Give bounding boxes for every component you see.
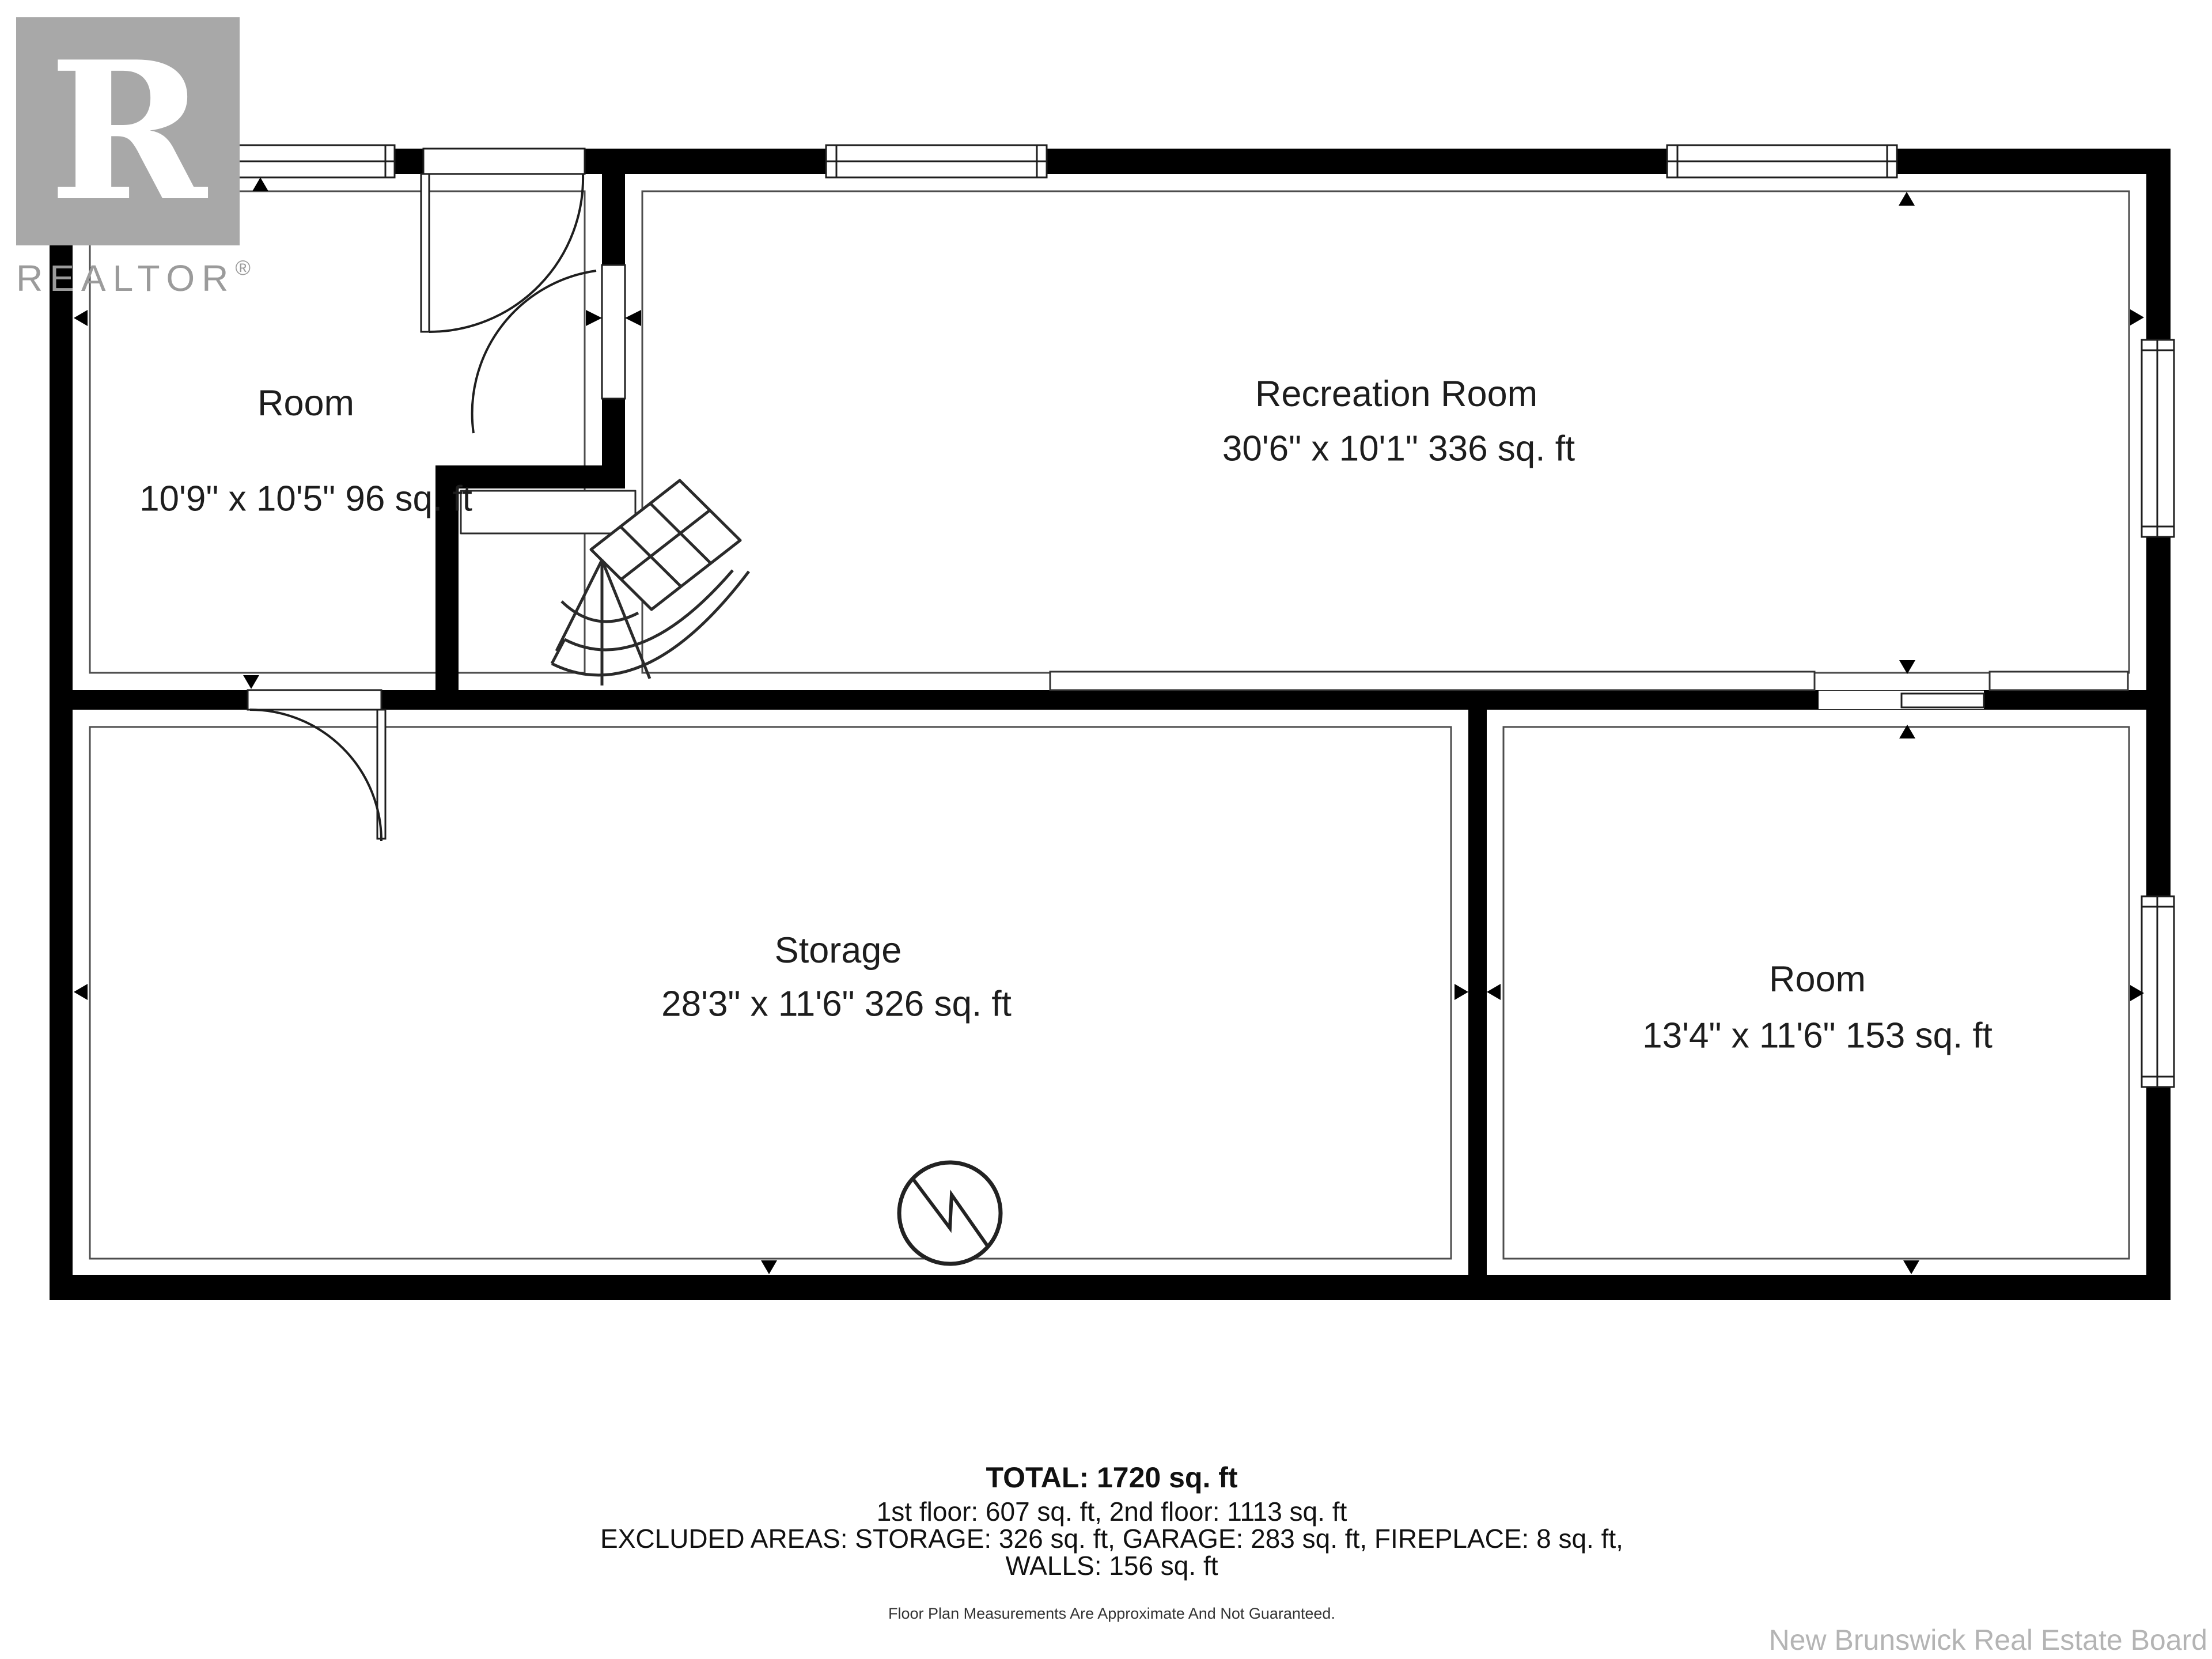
board-watermark: New Brunswick Real Estate Board	[1769, 1623, 2207, 1657]
marker-bottom-right	[1903, 1260, 1919, 1274]
summary-floors: 1st floor: 607 sq. ft, 2nd floor: 1113 s…	[0, 1496, 2212, 1527]
room2-label: Room	[1769, 959, 1866, 1000]
window-right-lower	[2142, 896, 2174, 1087]
marker-top-right	[1899, 192, 1915, 206]
window-top-2	[826, 145, 1047, 177]
room2-dimensions: 13'4" x 11'6" 153 sq. ft	[1642, 1016, 1993, 1056]
marker-right-upper	[2130, 309, 2144, 325]
realtor-logo-word: REALTOR®	[16, 256, 263, 300]
marker-bottom-left	[761, 1260, 777, 1274]
realtor-logo-icon: R	[16, 17, 240, 245]
summary-walls: WALLS: 156 sq. ft	[0, 1550, 2212, 1581]
marker-left-upper	[74, 310, 88, 326]
wall-left	[50, 149, 73, 1300]
door-storage	[243, 675, 385, 841]
floor-plan-page: R REALTOR® Room 10'9" x 10'5" 96 sq. ft …	[0, 0, 2212, 1659]
windows	[173, 145, 2174, 1087]
window-right-upper	[2142, 340, 2174, 537]
summary-excluded-areas: EXCLUDED AREAS: STORAGE: 326 sq. ft, GAR…	[0, 1523, 2212, 1554]
recreation-room-label: Recreation Room	[1255, 373, 1537, 415]
recreation-room-dimensions: 30'6" x 10'1" 336 sq. ft	[1222, 429, 1575, 469]
wall-divider-storage-room	[1468, 710, 1487, 1276]
marker-divider-left	[1455, 984, 1468, 1000]
wall-right	[2146, 149, 2171, 1300]
wall-bottom	[50, 1275, 2171, 1300]
summary-disclaimer: Floor Plan Measurements Are Approximate …	[0, 1605, 2212, 1623]
realtor-r-glyph: R	[49, 36, 207, 226]
room1-label: Room	[257, 382, 354, 424]
door-room1-entry	[421, 149, 585, 332]
realtor-logo: R REALTOR®	[16, 17, 263, 300]
room-inner-outlines	[90, 191, 2129, 1259]
stair-landing	[461, 491, 635, 533]
walls	[50, 149, 2171, 1300]
rec-room-ledge	[1050, 672, 2128, 690]
floor-plan-drawing	[0, 0, 2212, 1659]
staircase	[461, 480, 749, 685]
summary-total: TOTAL: 1720 sq. ft	[0, 1461, 2212, 1494]
realtor-wordmark: REALTOR	[16, 257, 235, 299]
storage-label: Storage	[775, 930, 902, 971]
registered-trademark-symbol: ®	[235, 256, 251, 279]
fireplace-symbol	[899, 1162, 1001, 1264]
room1-dimensions: 10'9" x 10'5" 96 sq. ft	[139, 479, 472, 520]
marker-left-lower	[74, 984, 88, 1000]
window-top-3	[1667, 145, 1897, 177]
storage-dimensions: 28'3" x 11'6" 326 sq. ft	[661, 984, 1012, 1025]
marker-divider-right	[1487, 984, 1501, 1000]
